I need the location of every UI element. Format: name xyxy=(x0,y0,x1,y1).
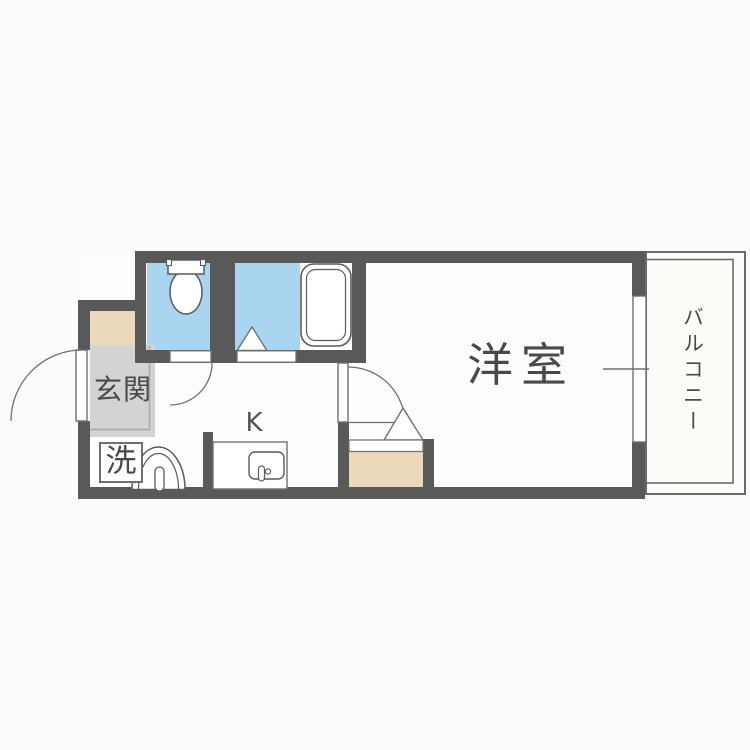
washbasin-faucet xyxy=(155,467,164,491)
entrance-label: 玄関 xyxy=(94,376,152,404)
bathtub-outer xyxy=(301,264,351,346)
entrance-step xyxy=(90,311,135,345)
toilet-tank-notch-right xyxy=(201,260,206,266)
closet-floor xyxy=(349,451,423,488)
wall-top xyxy=(135,251,645,263)
entrance-door-leaf xyxy=(76,350,87,421)
kitchen-label: K xyxy=(245,410,262,436)
kitchen-sink-faucet xyxy=(259,466,265,481)
wall-left-upper xyxy=(78,300,90,350)
wall-right-upper xyxy=(632,251,645,296)
wall-right-lower xyxy=(632,442,645,499)
toilet-tank-notch-left xyxy=(167,260,172,266)
laundry-label: 洗 xyxy=(106,447,137,478)
wall-toilet-bath-divider xyxy=(210,262,235,351)
wall-bath-right xyxy=(352,251,366,363)
toilet-bowl xyxy=(170,270,202,314)
kitchen-counter xyxy=(213,442,287,489)
closet-front-strip xyxy=(349,440,423,452)
toilet-tank xyxy=(168,260,204,274)
floor-plan-canvas: 玄関 洗 K 洋室 バルコニー xyxy=(0,0,750,750)
wall-room-door-stub xyxy=(338,422,349,489)
balcony-label: バルコニー xyxy=(682,306,703,436)
kitchen-sink-drain xyxy=(265,469,270,474)
bath-door-threshold xyxy=(237,351,296,362)
bathtub-fixture xyxy=(301,264,351,346)
wall-kitchen-stub xyxy=(203,432,213,489)
kitchen-sink-fixture xyxy=(249,452,284,479)
room-door-leaf xyxy=(338,363,348,422)
toilet-door-threshold xyxy=(170,351,211,362)
wall-closet-right xyxy=(423,439,434,489)
western-room-label: 洋室 xyxy=(467,342,575,388)
